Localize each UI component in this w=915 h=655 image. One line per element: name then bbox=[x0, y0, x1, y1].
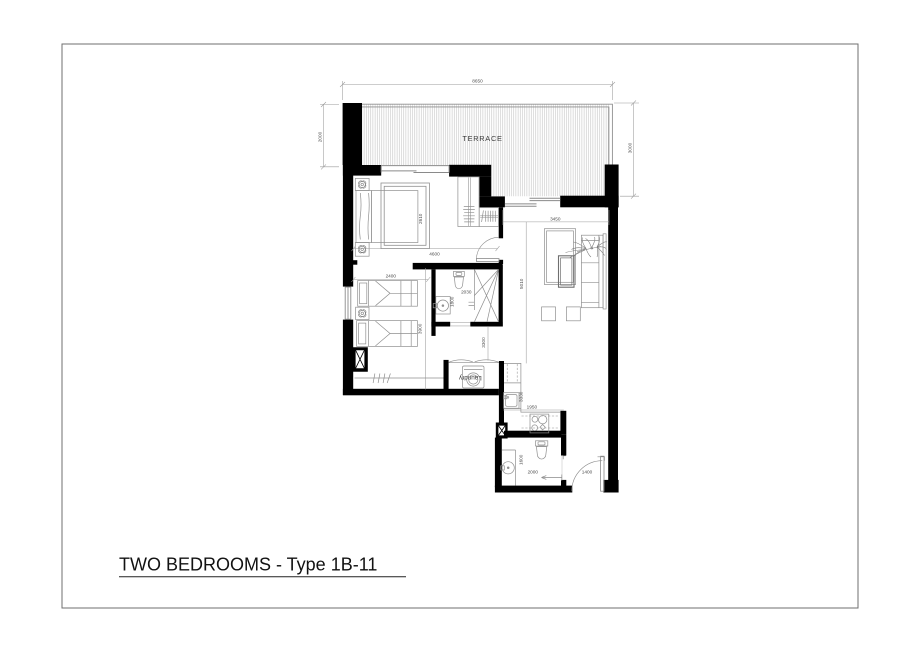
svg-text:2400: 2400 bbox=[386, 274, 397, 279]
svg-text:3300: 3300 bbox=[481, 337, 486, 348]
svg-text:8650: 8650 bbox=[472, 79, 483, 84]
svg-text:1950: 1950 bbox=[527, 405, 538, 410]
svg-text:2030: 2030 bbox=[461, 289, 472, 294]
svg-text:3330: 3330 bbox=[519, 391, 524, 402]
svg-text:1800: 1800 bbox=[450, 296, 455, 307]
svg-text:Laundry: Laundry bbox=[458, 374, 482, 381]
svg-text:1600: 1600 bbox=[518, 454, 523, 465]
svg-text:TWO BEDROOMS - Type 1B-11: TWO BEDROOMS - Type 1B-11 bbox=[119, 555, 377, 575]
svg-text:2000: 2000 bbox=[528, 470, 539, 475]
svg-text:2610: 2610 bbox=[418, 213, 423, 224]
svg-text:3450: 3450 bbox=[550, 216, 561, 221]
svg-text:3900: 3900 bbox=[418, 323, 423, 334]
svg-text:TERRACE: TERRACE bbox=[462, 134, 502, 143]
svg-text:4600: 4600 bbox=[429, 251, 440, 256]
svg-text:5010: 5010 bbox=[519, 278, 524, 289]
svg-text:1400: 1400 bbox=[582, 470, 593, 475]
svg-text:2000: 2000 bbox=[318, 131, 323, 142]
svg-text:3000: 3000 bbox=[628, 142, 633, 153]
